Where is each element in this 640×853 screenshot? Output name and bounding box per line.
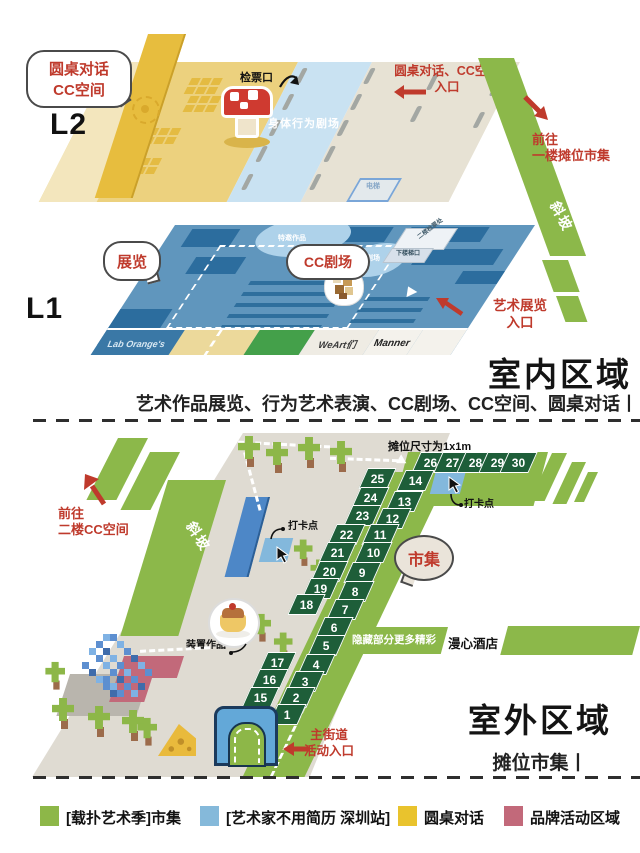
hotel-band [500, 626, 640, 655]
legend-swatch [40, 806, 59, 826]
to-cc-note: 前往 二楼CC空间 [58, 506, 129, 539]
cursor-icon [274, 546, 290, 564]
elevator-label: 电梯 [366, 183, 380, 192]
divider [33, 776, 640, 779]
tree-icon [330, 441, 354, 475]
indoor-title: 室内区域 [488, 348, 632, 396]
indoor-subtitle: 艺术作品展览、行为艺术表演、CC剧场、CC空间、圆桌对话丨 [136, 390, 638, 416]
main-street-gate [214, 706, 278, 766]
checkin2-leader [266, 526, 286, 542]
tree-canopy [266, 442, 288, 465]
mushroom-icon [218, 84, 276, 142]
cc-theater-bubble: CC剧场 [286, 244, 370, 280]
tree-canopy [294, 540, 313, 560]
stairs-front-label: 下楼梯口 [396, 251, 420, 259]
tree-icon [137, 718, 159, 749]
art-entrance-arrow-icon [432, 294, 466, 318]
tree-canopy [52, 698, 74, 721]
art-entrance-note: 艺术展览 入口 [472, 298, 568, 332]
tree-canopy [330, 441, 352, 464]
dashed-path [202, 330, 223, 355]
tree-canopy [88, 706, 110, 729]
cc-theater-bubble-text: CC剧场 [304, 252, 352, 272]
ticket-gate-label: 检票口 [240, 72, 273, 86]
ramp-note: 前往 一楼摊位市集 [532, 132, 610, 165]
ticket-gate-arrow-icon [278, 70, 302, 92]
divider [33, 419, 640, 422]
outdoor-title-block: 室外区域 摊位市集丨 [468, 694, 612, 775]
ramp-arrow-icon [518, 90, 554, 126]
tree-canopy [298, 437, 320, 460]
ramp-stripe [542, 260, 580, 292]
l2-entrance-arrow-icon [392, 84, 430, 100]
tree-canopy [238, 436, 260, 459]
outdoor-subtitle: 摊位市集丨 [468, 748, 612, 775]
tenant-label: Lab Orange's [107, 339, 166, 349]
tree-icon [266, 442, 290, 476]
exhibition-bubble-text: 展览 [117, 251, 147, 272]
legend-swatch [398, 806, 417, 826]
tree-icon [45, 662, 67, 693]
l1-label: L1 [26, 290, 63, 328]
legend-label: [艺术家不用简历 深圳站] [226, 807, 390, 828]
venue-map: 电梯 圆桌对话 CC空间 L2 检票口 身体行为剧场 圆桌对话、CC空间 入口 … [0, 0, 640, 853]
exhibition-bubble: 展览 [103, 241, 161, 281]
tenant-label: Manner [373, 338, 411, 349]
checkin1-leader [446, 492, 464, 508]
legend-swatch [200, 806, 219, 826]
tree-icon [88, 706, 112, 740]
legend-label: 品牌活动区域 [530, 807, 620, 828]
tree-icon [298, 437, 322, 471]
brand-area-notch [144, 678, 192, 704]
tree-canopy [137, 718, 157, 739]
fountain-sculpture [82, 634, 89, 641]
market-bubble-text: 市集 [408, 546, 440, 570]
legend-label: 圆桌对话 [424, 807, 484, 828]
l2-label: L2 [50, 106, 87, 144]
tree-canopy [274, 633, 293, 653]
gate-arrow-icon [280, 740, 312, 758]
legend-swatch [504, 806, 523, 826]
market-bubble: 市集 [394, 535, 454, 581]
tenant-strip: Lab Orange'sWeArt们Manner [91, 328, 469, 355]
hotel-label: 漫心酒店 [448, 637, 498, 653]
legend-label: [载扑艺术季]市集 [66, 807, 181, 828]
to-cc-arrow-icon [76, 470, 112, 510]
tree-canopy [45, 662, 65, 683]
body-theater-label: 身体行为剧场 [268, 118, 340, 132]
outdoor-title: 室外区域 [468, 694, 612, 742]
tenant-label: WeArt们 [318, 337, 358, 351]
hidden-note: 隐藏部分更多精彩 [352, 634, 436, 647]
checkin1-label: 打卡点 [464, 499, 494, 512]
tree-icon [238, 436, 262, 470]
checkin2-label: 打卡点 [288, 521, 318, 534]
oval1-label: 特邀作品 [278, 235, 306, 244]
installation-leader [228, 640, 252, 656]
roundtable-bubble-text: 圆桌对话 CC空间 [49, 58, 109, 100]
tree-icon [52, 698, 76, 732]
sun-icon [132, 96, 160, 124]
roundtable-bubble: 圆桌对话 CC空间 [26, 50, 132, 108]
